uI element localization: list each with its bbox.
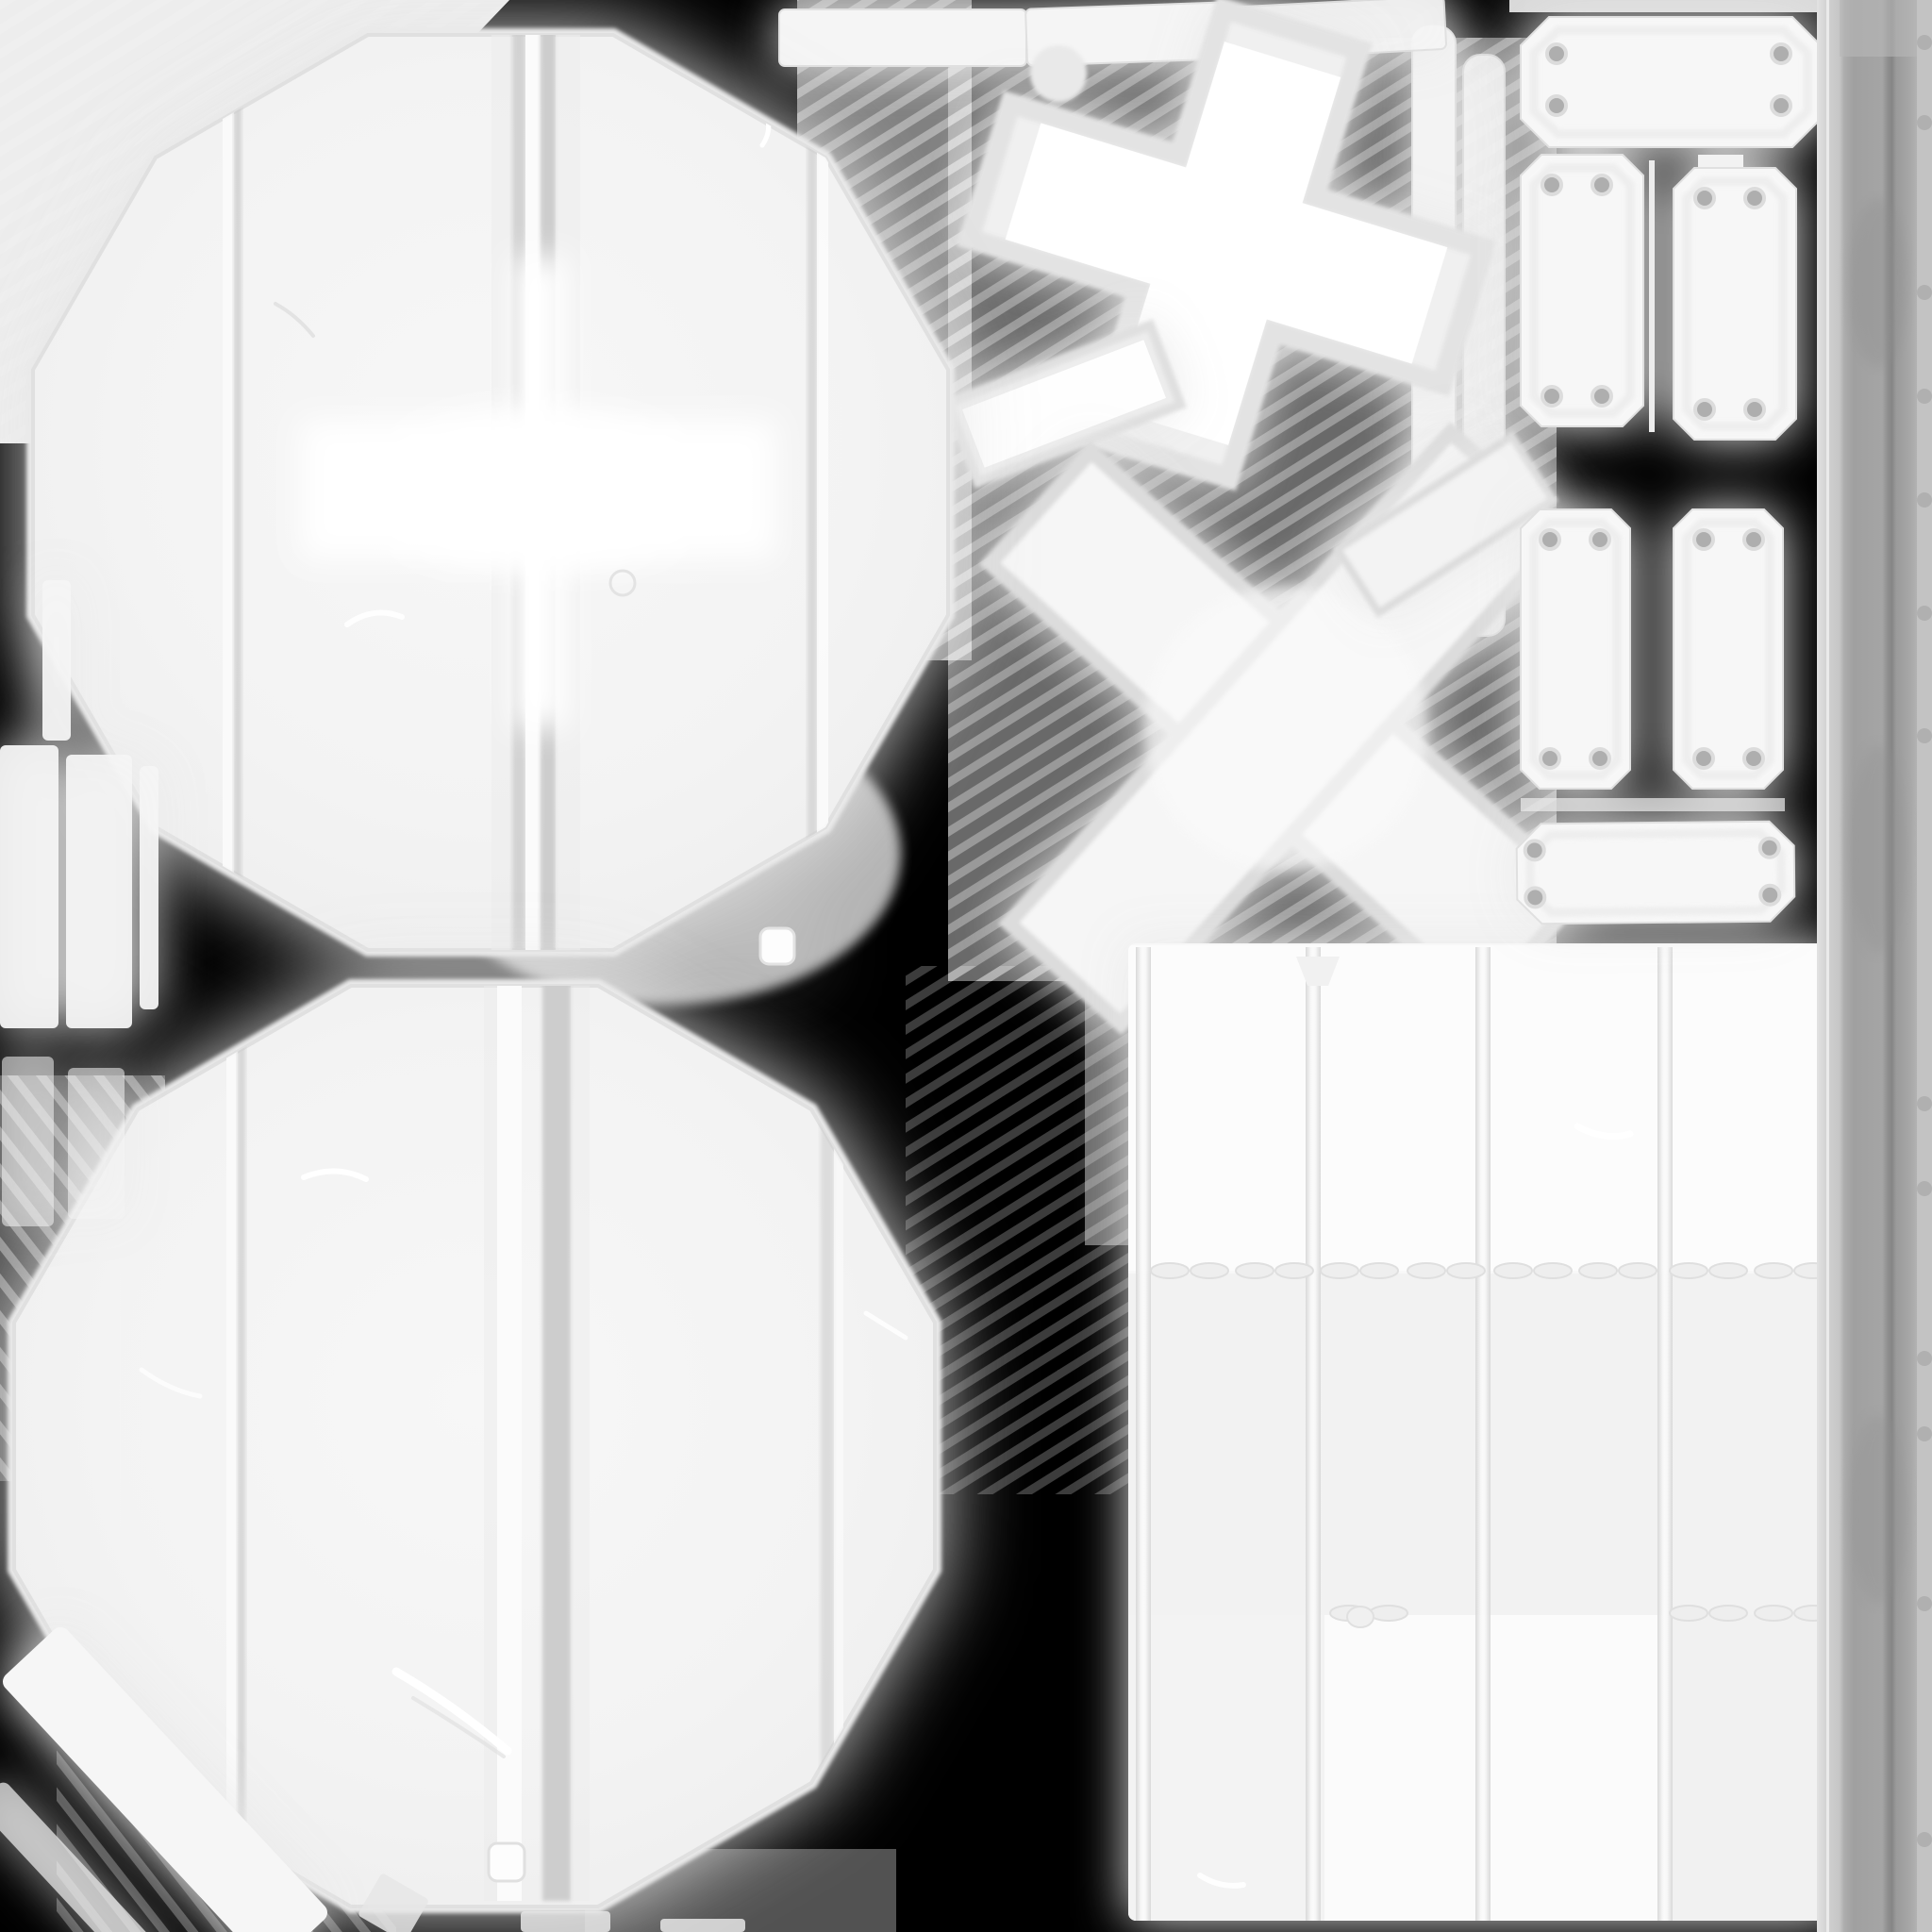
bolt-hole [1694,749,1713,768]
bolt-hole [1591,530,1609,549]
rivet-blob [1917,1596,1932,1611]
bolt-hole [1695,400,1714,419]
nail-bump [1360,1263,1398,1278]
rail-top-cap [1840,0,1917,57]
plank-panel [1128,943,1838,1921]
cross-x-sheen [1144,587,1427,870]
rivet-blob [1917,606,1932,621]
plank-groove [1136,947,1151,1921]
plank-seam [484,981,497,1901]
nail-bump [1619,1263,1657,1278]
plank-seam [542,981,571,1901]
rivet-blob [1917,1096,1932,1111]
nail-bump [1407,1263,1445,1278]
left-strip-fragment [66,755,132,1028]
plate-vertical [1674,509,1783,789]
left-strip-fragment [2,1057,54,1226]
rivet-blob [1917,115,1932,130]
rivet-blob [1917,1181,1932,1196]
left-strip-fragment [140,766,158,1009]
plank-zone-lower [1128,1615,1324,1921]
rivet-blob [1917,492,1932,508]
plate-body [1521,17,1821,147]
top-sliver [1509,0,1845,12]
rail-mottle [1850,745,1907,953]
rivet-blob [1917,1351,1932,1366]
plank-seam [571,981,590,1901]
disc-top [33,24,948,964]
plank-seam [817,57,828,906]
nail-bump [1447,1263,1485,1278]
plank-seam [497,981,522,1901]
bolt-hole [1541,749,1559,768]
disc-bottom-notch [489,1843,525,1881]
rivet-blob [1917,285,1932,300]
top-plank-segment [779,9,1026,66]
bolt-hole [1745,400,1764,419]
plank-groove [1657,947,1673,1921]
plank-seam [223,80,234,891]
plate-horizontal [1521,17,1821,147]
plank-zone-lower [1665,1615,1838,1921]
plate-vertical [1521,155,1643,426]
bolt-hole [1525,888,1544,907]
bolt-hole [1694,530,1713,549]
bolt-hole [1592,175,1611,194]
bolt-hole [1772,44,1790,63]
nail-bump [1191,1263,1228,1278]
bolt-hole [1592,387,1611,406]
round-blob-fragment [1030,45,1087,102]
plank-seam [808,57,817,906]
bolt-hole [1542,387,1561,406]
nail-bump [1275,1263,1313,1278]
nail-bump [1321,1263,1358,1278]
left-strip-fragment [42,580,71,741]
bolt-hole [1695,189,1714,208]
left-strip-fragment [0,745,58,1028]
plank-groove [1306,947,1321,1921]
plank-seam [821,1038,834,1830]
rail-highlight-line [1826,0,1829,1932]
rivet-blob [1917,35,1932,50]
bolt-hole [1541,530,1559,549]
plate-vertical [1674,155,1796,440]
plank-groove [1475,947,1491,1921]
bolt-hole [1591,749,1609,768]
plate-body [1521,155,1643,426]
bolt-hole [1525,841,1544,859]
bolt-hole [1744,530,1763,549]
bolt-hole [1744,749,1763,768]
white-hot-glow [358,410,717,571]
plank-zone-lower-bright [1324,1615,1664,1921]
rail-mottle [1850,198,1907,368]
rail-mottle [1850,1415,1907,1604]
rivet-blob [1917,1426,1932,1441]
right-rail [1817,0,1932,1932]
plank-seam [238,1033,245,1835]
bolt-hole [1745,189,1764,208]
disc-bottom-tab [760,928,794,964]
nail-bump [1579,1263,1617,1278]
nail-bump [1236,1263,1274,1278]
plank-seam [226,1033,238,1835]
plate-vertical [1521,509,1630,789]
bolt-hole [1547,44,1566,63]
nail-bump [1494,1263,1532,1278]
texture-atlas [0,0,1932,1932]
bolt-hole [1760,886,1779,905]
plate-echo-strip [1521,798,1785,811]
bolt-hole [1542,175,1561,194]
plank-seam [234,80,241,891]
nail-bump [1670,1606,1707,1621]
plate-divider [1649,160,1655,432]
nail-bump [1709,1263,1747,1278]
nail-bump [1755,1263,1792,1278]
bolt-hole [1772,96,1790,115]
rivet-blob [1917,728,1932,743]
plate-body [1674,168,1796,440]
nail-bump [1709,1606,1747,1621]
bolt-hole [1547,96,1566,115]
left-strip-fragment [68,1068,125,1219]
bolt-hole [1760,839,1779,858]
bottom-fragment [521,1911,610,1932]
knot [1347,1607,1374,1627]
bottom-fragment [660,1919,745,1932]
nail-bump [1670,1263,1707,1278]
nail-bump [1370,1606,1407,1621]
rivet-blob [1917,389,1932,404]
rivet-blob [1917,1832,1932,1847]
nail-bump [1151,1263,1189,1278]
plate-horizontal [1516,821,1794,924]
nail-bump [1755,1606,1792,1621]
nail-bump [1534,1263,1572,1278]
